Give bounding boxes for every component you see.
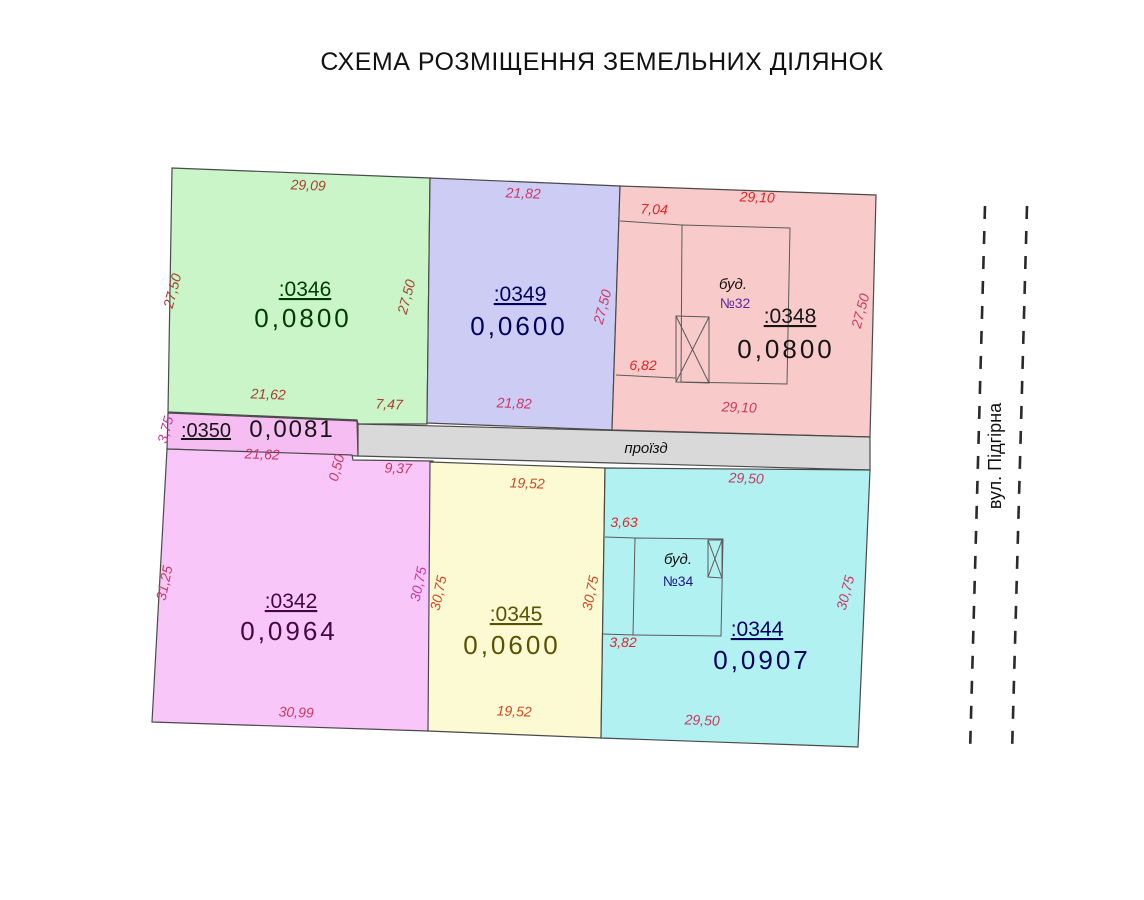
parcel-0346-area: 0,0800 — [254, 303, 352, 333]
parcel-0348-id: :0348 — [764, 305, 817, 328]
street-dashed-line-right — [1012, 206, 1027, 753]
parcel-0345-id: :0345 — [490, 603, 543, 626]
land-plot-scheme-page: СХЕМА РОЗМІЩЕННЯ ЗЕМЕЛЬНИХ ДІЛЯНОК вул. … — [0, 0, 1144, 900]
building-34-label: буд. — [664, 551, 692, 568]
dim-0344-offset-top: 3,63 — [610, 514, 637, 530]
building-34-number: №34 — [663, 573, 694, 589]
dim-0345-bottom: 19,52 — [496, 702, 532, 719]
site-plan-drawing: вул. Підгірна :0346 0,0800 :0349 0,0600 … — [0, 0, 1144, 900]
building-32-number: №32 — [720, 295, 751, 311]
dim-0348-offset-bottom: 6,82 — [629, 357, 656, 373]
dim-0349-bottom: 21,82 — [495, 394, 532, 411]
dim-0346-bottom-right: 7,47 — [375, 396, 404, 413]
parcel-0350-id: :0350 — [181, 420, 231, 442]
parcel-0342-area: 0,0964 — [240, 616, 338, 646]
parcel-0348-area: 0,0800 — [737, 334, 835, 364]
dim-0346-top: 29,09 — [289, 176, 326, 193]
street-dashed-line-left — [970, 206, 985, 753]
parcel-0349-id: :0349 — [494, 283, 547, 306]
dim-0342-bottom: 30,99 — [278, 703, 314, 720]
parcel-0350-area: 0,0081 — [249, 416, 334, 443]
dim-0344-bottom: 29,50 — [683, 711, 720, 728]
dim-0344-top: 29,50 — [727, 469, 764, 486]
dim-0349-top: 21,82 — [504, 184, 541, 201]
street-name-label: вул. Підгірна — [985, 402, 1005, 509]
dim-0348-bottom: 29,10 — [720, 398, 757, 415]
parcel-0346-id: :0346 — [279, 278, 332, 301]
page-title: СХЕМА РОЗМІЩЕННЯ ЗЕМЕЛЬНИХ ДІЛЯНОК — [320, 48, 883, 77]
parcel-0344-area: 0,0907 — [713, 645, 811, 675]
road-label: проїзд — [624, 440, 667, 457]
dim-0345-top: 19,52 — [509, 474, 545, 491]
dim-0350-bottom: 21,62 — [243, 445, 280, 462]
dim-0348-offset-top: 7,04 — [640, 201, 668, 218]
dim-road-segment: 9,37 — [384, 460, 413, 477]
dim-0346-bottom: 21,62 — [249, 385, 286, 402]
parcel-0344-shape — [601, 468, 870, 747]
dim-0348-top: 29,10 — [738, 188, 775, 205]
parcel-0345-area: 0,0600 — [463, 630, 561, 660]
building-32-label: буд. — [719, 276, 747, 293]
parcel-0342-id: :0342 — [265, 590, 318, 613]
parcel-0345-shape — [428, 462, 605, 738]
dim-0344-offset-bottom: 3,82 — [609, 634, 636, 650]
parcel-0349-area: 0,0600 — [470, 311, 568, 341]
parcel-0344-id: :0344 — [731, 618, 784, 641]
